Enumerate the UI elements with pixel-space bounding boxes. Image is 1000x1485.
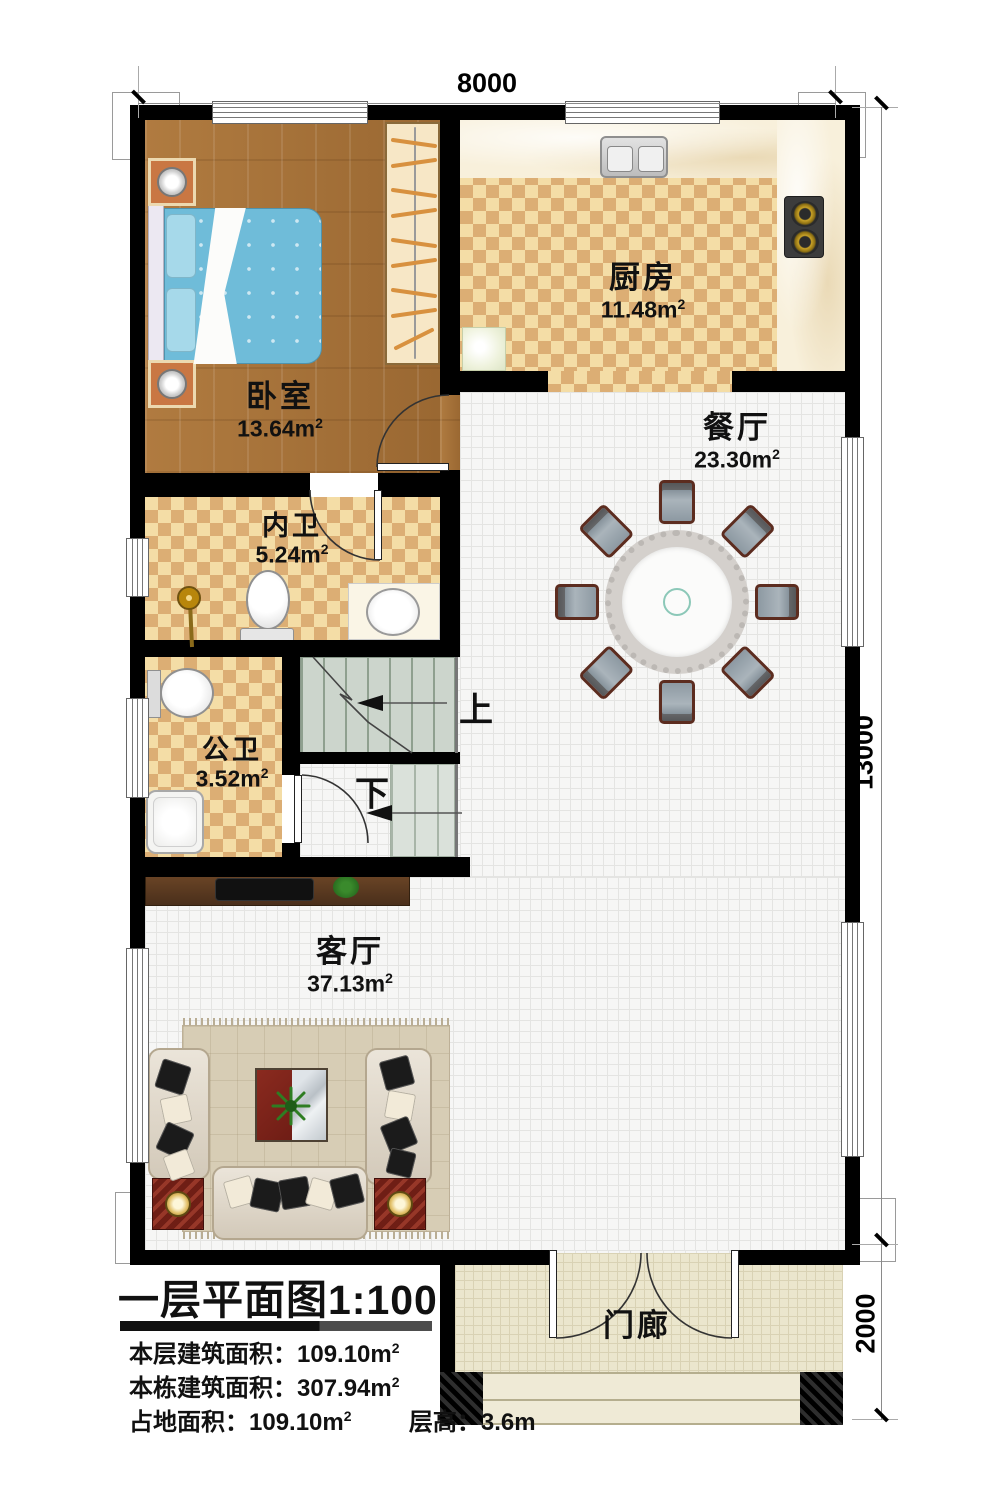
wall-kitchen-dining-left <box>460 371 548 392</box>
wall-bedroom-bath-left <box>145 473 310 497</box>
wall-stair-mid <box>295 752 460 764</box>
bed-headboard <box>148 204 164 378</box>
room-name: 门廊 <box>603 1310 671 1343</box>
window-living-right <box>841 922 864 1157</box>
public-bath-toilet-icon <box>160 668 214 718</box>
room-name: 厨房 <box>601 262 686 295</box>
side-table-left <box>152 1178 204 1230</box>
kitchen-opening-floor <box>548 371 732 392</box>
window-inner-bath <box>126 538 149 597</box>
inner-bath-sink-icon <box>366 588 420 636</box>
porch-column-right <box>800 1372 843 1425</box>
pillow <box>159 1093 192 1126</box>
bedroom-doorway-floor <box>440 395 460 473</box>
nightstand-top <box>148 158 196 206</box>
kitchen-sink-icon <box>600 136 668 178</box>
dim-line-top <box>138 103 836 104</box>
public-bath-door-leaf <box>294 775 302 843</box>
plant-icon <box>333 876 359 898</box>
lamp-icon <box>387 1191 413 1217</box>
wall-kitchen-dining-right <box>732 371 845 392</box>
room-area: 3.52m2 <box>195 766 268 791</box>
room-name: 客厅 <box>307 936 393 969</box>
room-name: 内卫 <box>255 512 328 540</box>
dim-width: 8000 <box>437 68 537 99</box>
kitchen-cabinet-corner <box>462 327 506 371</box>
dining-chair <box>659 480 695 524</box>
page-title: 一层平面图1:100 <box>118 1266 438 1326</box>
porch-step-edge <box>483 1399 805 1401</box>
lamp-icon <box>157 167 187 197</box>
lamp-icon <box>165 1191 191 1217</box>
wall-bottom-right <box>737 1250 860 1265</box>
wall-hall-living <box>130 857 470 877</box>
room-name: 卧室 <box>237 381 323 414</box>
room-label-bedroom: 卧室 13.64m2 <box>237 381 323 440</box>
dim-line-right <box>881 107 882 1420</box>
dining-chair <box>755 584 799 620</box>
window-bedroom <box>212 101 368 124</box>
wall-baths-divider <box>130 640 460 657</box>
stair-rail-lower <box>455 764 458 857</box>
ext-line <box>852 107 898 108</box>
dining-chair <box>659 680 695 724</box>
side-table-right <box>374 1178 426 1230</box>
coffee-table-glass <box>292 1070 327 1140</box>
room-label-porch: 门廊 <box>603 1310 671 1343</box>
wall-bedroom-kitchen <box>440 105 460 395</box>
entry-door-leaf-right <box>731 1250 739 1338</box>
stove-icon <box>784 196 824 258</box>
tub-inner <box>153 797 197 847</box>
dining-chair <box>555 584 599 620</box>
inner-bath-door-leaf <box>374 490 382 560</box>
window-dining-right <box>841 437 864 647</box>
stat-land-area-and-height: 占地面积：109.10m2 层高：3.6m <box>129 1402 536 1437</box>
window-public-bath <box>126 698 149 798</box>
stairs-lower-flight <box>390 764 455 857</box>
rug-fringe-top <box>183 1018 449 1026</box>
tv-icon <box>216 879 313 900</box>
window-kitchen <box>565 101 720 124</box>
room-name: 公卫 <box>195 736 268 764</box>
room-label-kitchen: 厨房 11.48m2 <box>601 262 686 321</box>
room-area: 11.48m2 <box>601 297 686 322</box>
inner-bath-toilet-icon <box>246 570 290 630</box>
room-label-inner-bath: 内卫 5.24m2 <box>255 512 328 567</box>
room-area: 5.24m2 <box>255 542 328 567</box>
bed-pillow-bottom <box>166 288 196 352</box>
room-area: 23.30m2 <box>694 447 780 472</box>
dim-height: 13000 <box>849 698 880 808</box>
sink-basin-left <box>607 146 633 172</box>
coffee-table <box>255 1068 328 1142</box>
room-label-dining: 餐厅 23.30m2 <box>694 412 780 471</box>
room-label-public-bath: 公卫 3.52m2 <box>195 736 268 791</box>
wall-bottom-left <box>130 1250 553 1265</box>
wall-bedroom-dining <box>440 470 460 640</box>
nightstand-bottom <box>148 360 196 408</box>
dim-porch: 2000 <box>851 1279 882 1369</box>
wall-porch-left <box>440 1250 455 1372</box>
sink-basin-right <box>638 146 664 172</box>
entry-door-leaf-left <box>549 1250 557 1338</box>
stair-up-label: 上 <box>459 683 493 732</box>
burner-bottom <box>791 229 819 255</box>
ext-line <box>835 66 836 118</box>
tv-cabinet <box>145 874 410 906</box>
table-center-ring <box>663 588 691 616</box>
public-bath-tub-icon <box>146 790 204 854</box>
burner-top <box>791 201 819 227</box>
window-living-left <box>126 948 149 1163</box>
room-name: 餐厅 <box>694 412 780 445</box>
ext-line <box>852 1419 898 1420</box>
floor-plan-page: 卧室 13.64m2 厨房 11.48m2 餐厅 23.30m2 内卫 5.24… <box>0 0 1000 1485</box>
bedroom-door-leaf <box>377 463 449 471</box>
stairs-upper-flight <box>300 657 455 753</box>
room-area: 37.13m2 <box>307 971 393 996</box>
wardrobe <box>385 122 440 365</box>
coffee-table-wood <box>257 1070 292 1140</box>
stair-rail-upper <box>455 657 458 753</box>
room-area: 13.64m2 <box>237 416 323 441</box>
ext-line <box>852 1244 898 1245</box>
lamp-icon <box>157 369 187 399</box>
stair-down-label: 下 <box>355 767 389 816</box>
wall-bedroom-bath-right <box>378 473 440 497</box>
public-bath-toilet-tank <box>147 670 161 718</box>
stat-floor-area: 本层建筑面积：109.10m2 <box>129 1334 400 1369</box>
title-underline <box>120 1321 432 1331</box>
ext-line <box>138 66 139 118</box>
stat-building-area: 本栋建筑面积：307.94m2 <box>129 1368 400 1403</box>
bed-pillow-top <box>166 214 196 278</box>
room-label-living: 客厅 37.13m2 <box>307 936 393 995</box>
